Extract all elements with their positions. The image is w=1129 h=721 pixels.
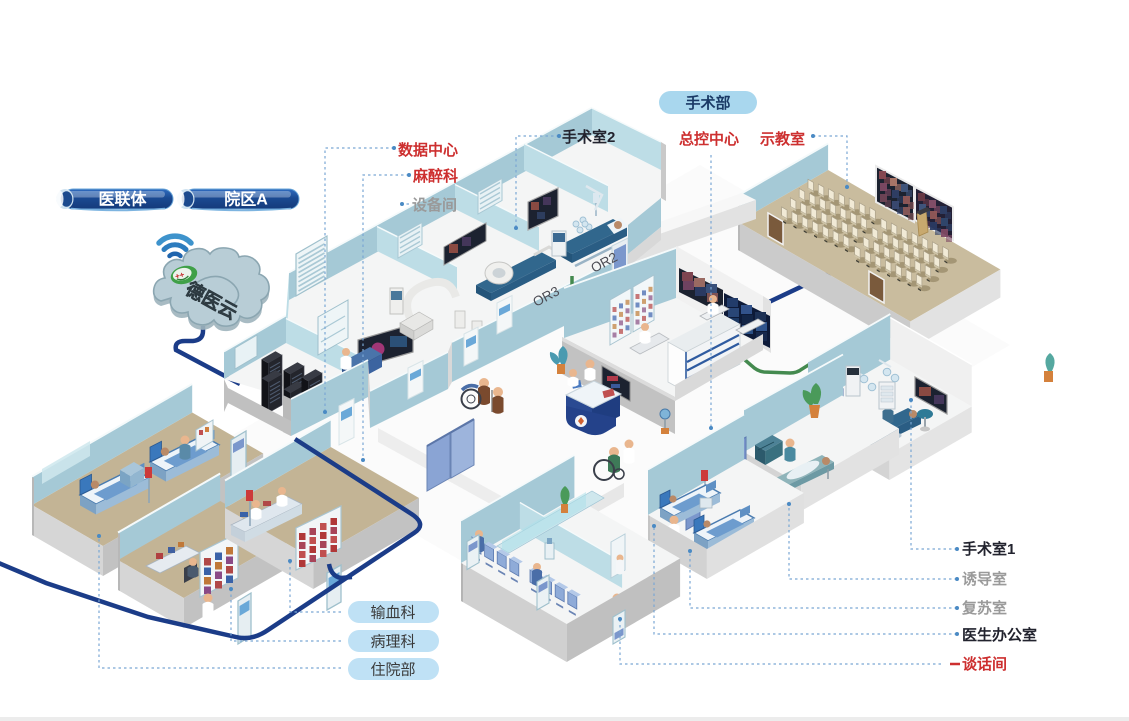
svg-text:住院部: 住院部 xyxy=(370,661,415,679)
svg-text:谈话间: 谈话间 xyxy=(962,655,1007,673)
svg-text:手术部: 手术部 xyxy=(685,94,730,112)
svg-text:输血科: 输血科 xyxy=(370,605,415,622)
svg-text:设备间: 设备间 xyxy=(412,196,457,214)
svg-text:手术室2: 手术室2 xyxy=(562,128,615,146)
svg-text:麻醉科: 麻醉科 xyxy=(412,167,458,185)
svg-text:手术室1: 手术室1 xyxy=(962,540,1015,558)
svg-text:医联体: 医联体 xyxy=(98,190,147,209)
svg-text:病理科: 病理科 xyxy=(370,634,415,651)
svg-text:复苏室: 复苏室 xyxy=(961,599,1007,617)
svg-text:诱导室: 诱导室 xyxy=(962,570,1007,588)
svg-text:院区A: 院区A xyxy=(224,190,268,209)
svg-text:示教室: 示教室 xyxy=(760,130,805,148)
svg-text:数据中心: 数据中心 xyxy=(398,141,458,159)
svg-text:总控中心: 总控中心 xyxy=(679,130,739,148)
svg-text:医生办公室: 医生办公室 xyxy=(962,626,1037,644)
